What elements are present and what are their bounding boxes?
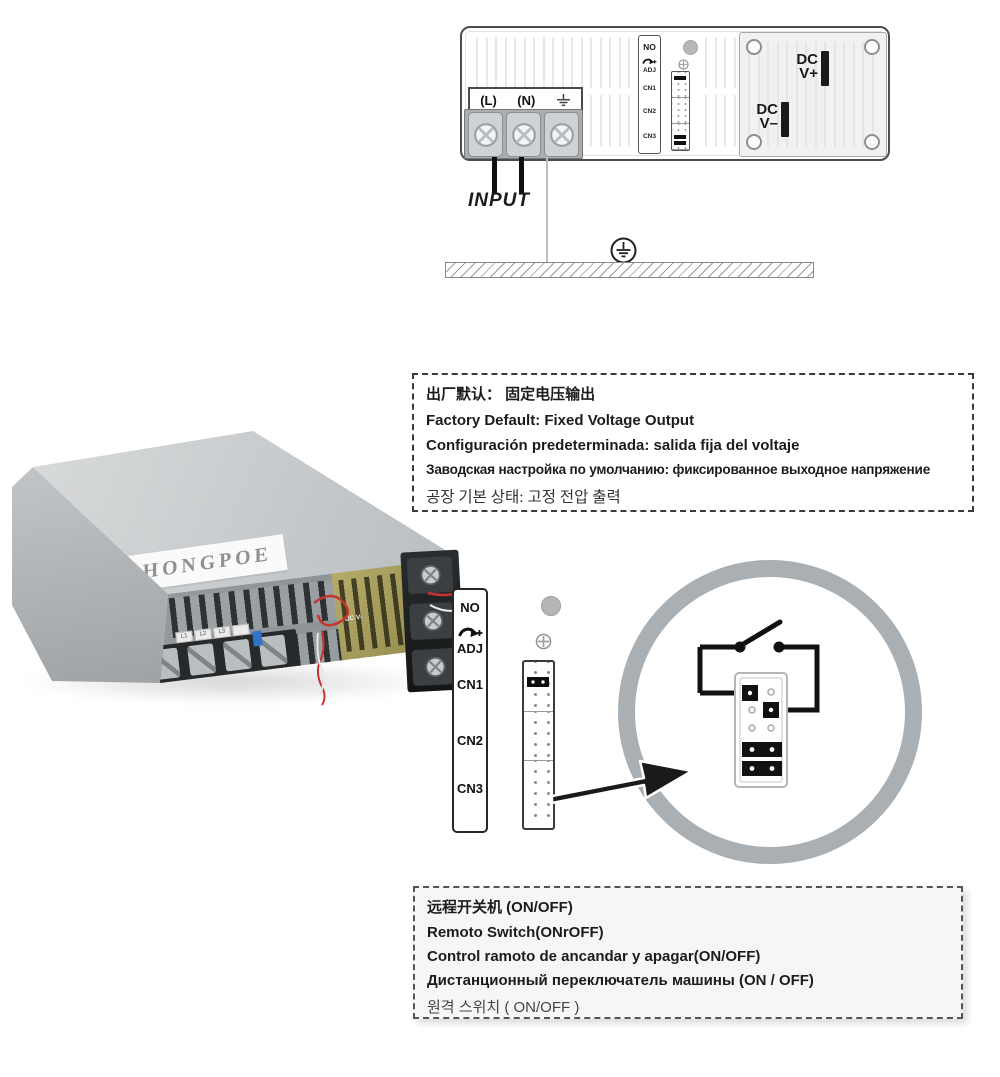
label-cn2: CN2 [639,108,660,115]
label-cn1: CN1 [454,677,486,692]
vplus-text: V+ [776,67,818,81]
label-cn3: CN3 [454,781,486,796]
cn1-section [524,662,553,712]
adjust-knob [683,40,698,55]
label-cn3: CN3 [639,133,660,140]
label-no: NO [639,42,660,52]
screw-icon [746,134,762,150]
neutral-label: (N) [517,93,535,108]
jumper [674,76,686,80]
screw-icon [678,59,689,70]
input-label: INPUT [468,190,530,212]
earth-ground-icon [610,237,637,264]
notice-line-zh: 远程开关机 (ON/OFF) [427,896,949,917]
jumper [674,135,686,139]
terminal-screw-icon [549,122,575,148]
connector-label-strip: NO ADJ CN1 CN2 CN3 [638,35,661,154]
terminal-line [468,112,503,157]
dc-vplus-label: DC V+ [776,53,818,81]
screw-icon [864,39,880,55]
neutral-wire [519,157,524,193]
ground-symbol-icon [556,94,571,107]
vminus-text: V– [736,117,778,131]
power-supply-instruction-sheet: NO ADJ CN1 CN2 CN3 [0,0,1000,1077]
label-cn1: CN1 [639,85,660,92]
label-no: NO [454,600,486,615]
terminal-neutral [506,112,541,157]
line-label: (L) [480,93,497,108]
notice-line-ru: Дистанционный переключатель машины (ON /… [427,972,949,989]
label-adj: ADJ [639,67,660,74]
label-cn2: CN2 [454,733,486,748]
screw-icon [746,39,762,55]
dc-vminus-label: DC V– [736,103,778,131]
notice-line-ko: 원격 스위치 ( ON/OFF ) [427,996,949,1017]
dc-output-panel: DC V+ DC V– [739,32,887,157]
notice-line-zh: 出厂默认： 固定电压输出 [426,383,960,404]
zoom-arrow-icon [540,752,700,808]
terminal-screw-icon [473,122,499,148]
screw-icon [535,633,552,650]
remote-switch-schematic [618,560,922,864]
notice-line-en: Remoto Switch(ONrOFF) [427,924,949,941]
cn2-section [672,98,689,124]
ground-wire [546,157,548,263]
notice-line-es: Control ramoto de ancandar y apagar(ON/O… [427,948,949,965]
jumper [527,677,549,687]
vent-grille [705,33,738,151]
line-wire [492,157,497,193]
notice-remote-switch: 远程开关机 (ON/OFF) Remoto Switch(ONrOFF) Con… [413,886,963,1019]
ac-terminal-block [464,109,583,159]
notice-line-es: Configuración predeterminada: salida fij… [426,437,960,454]
connector-label-strip-large: NO ADJ CN1 CN2 CN3 [452,588,488,833]
notice-line-ko: 공장 기본 상태: 고정 전압 출력 [426,485,960,507]
adjust-arrow-icon [457,625,484,640]
rear-panel: NO ADJ CN1 CN2 CN3 [460,26,890,161]
label-adj: ADJ [454,641,486,656]
notice-line-en: Factory Default: Fixed Voltage Output [426,412,960,429]
vplus-terminal-bar [821,51,829,86]
notice-fixed-voltage: 出厂默认： 固定电压输出 Factory Default: Fixed Volt… [412,373,974,512]
wires-overlay [0,425,470,715]
psu-photo: HONGPOE L1 L2 L3 [0,425,470,715]
adjust-arrow-icon [642,57,657,66]
cn-pin-connector [671,71,690,151]
ground-plane [445,262,814,278]
screw-icon [864,134,880,150]
terminal-screw-icon [511,122,537,148]
jumper [674,141,686,145]
vminus-terminal-bar [781,102,789,137]
terminal-ground [544,112,579,157]
adjust-knob [541,596,561,616]
notice-line-ru: Заводская настройка по умолчанию: фиксир… [426,462,960,477]
